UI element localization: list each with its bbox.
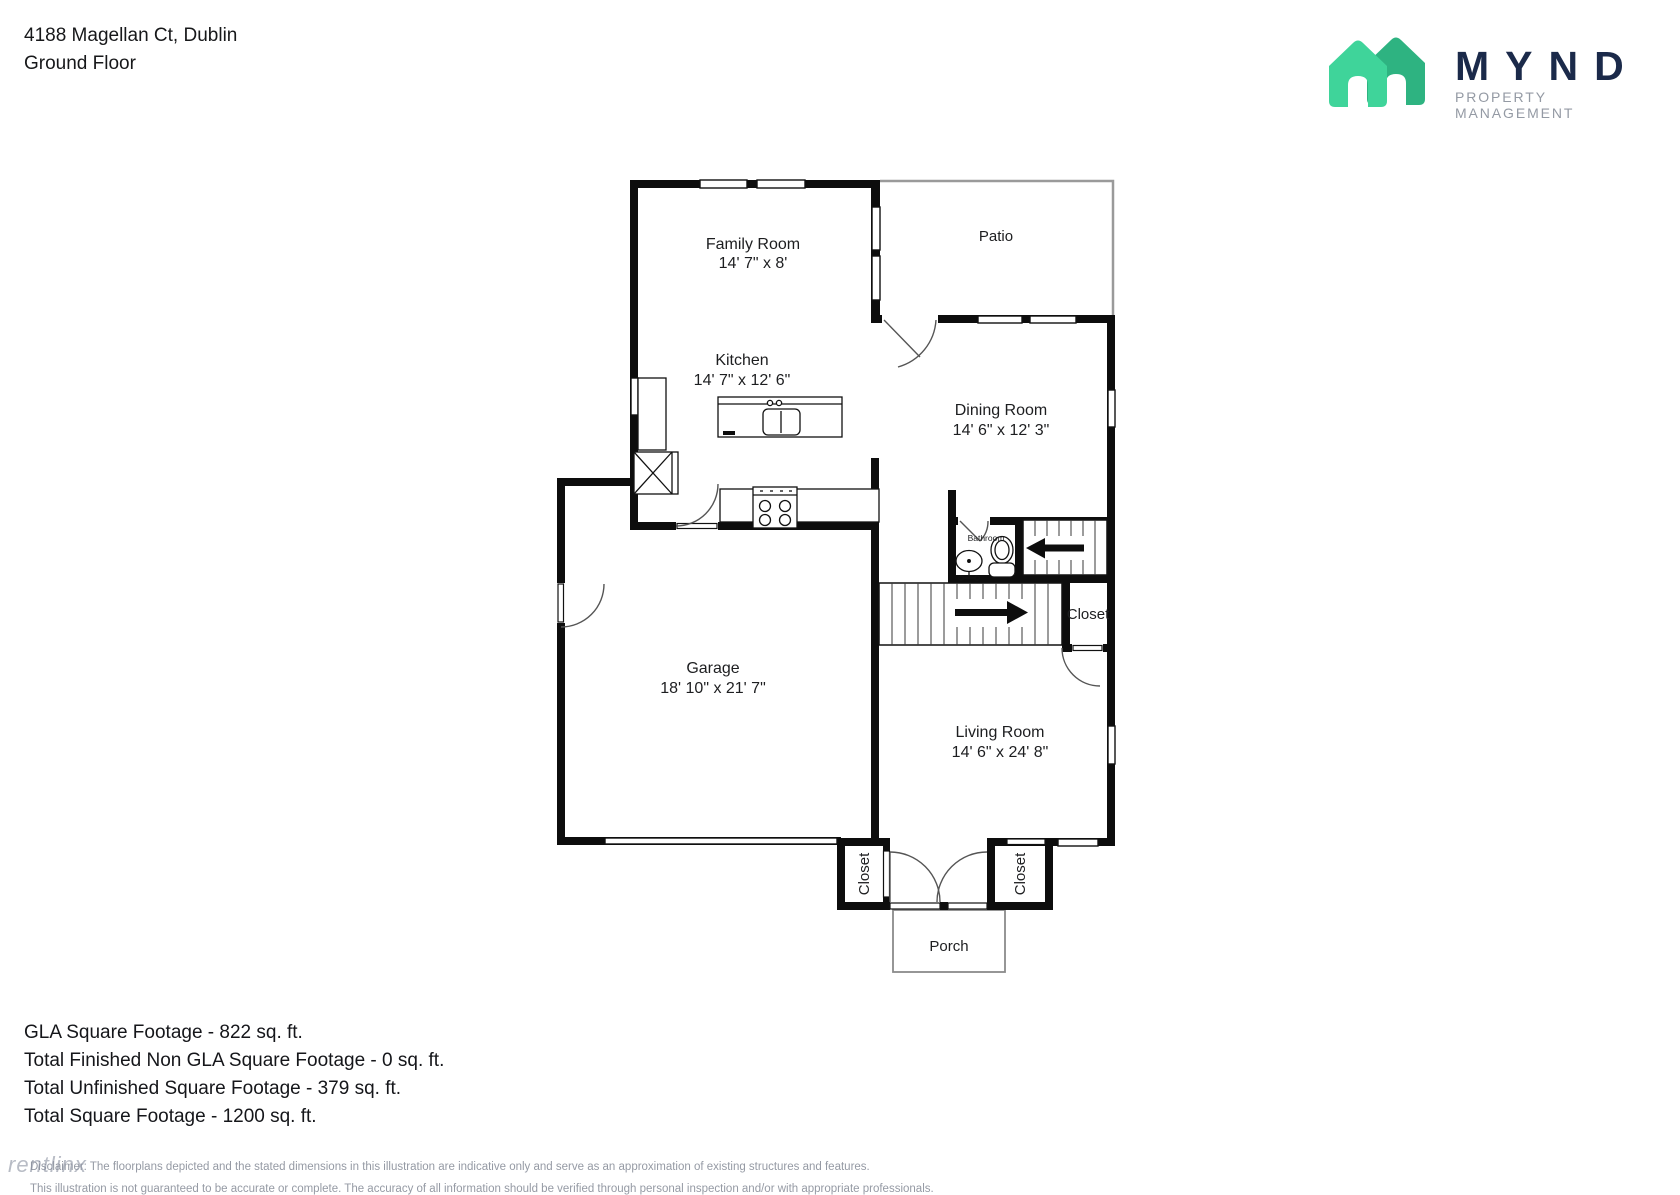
patio-outline [880,181,1113,316]
brand-name: MYND [1455,44,1670,88]
closet-label-right: Closet [1012,852,1029,895]
disclaimer-line2: This illustration is not guaranteed to b… [30,1183,934,1195]
header: 4188 Magellan Ct, Dublin Ground Floor [24,22,237,78]
closet-label-mid: Closet [1067,606,1110,623]
logo-text: MYND PROPERTY MANAGEMENT [1455,44,1670,121]
closet-label-left: Closet [856,852,873,895]
room-label-patio: Patio [979,228,1013,245]
room-label-kitchen: Kitchen [715,352,768,369]
unfinished-footage: Total Unfinished Square Footage - 379 sq… [24,1075,444,1103]
room-dims-living: 14' 6" x 24' 8" [952,744,1049,761]
mynd-logo-icon [1325,30,1431,108]
non-gla-footage: Total Finished Non GLA Square Footage - … [24,1047,444,1075]
bathroom-fixtures [956,537,1015,581]
room-dims-garage: 18' 10" x 21' 7" [660,680,766,697]
gla-footage: GLA Square Footage - 822 sq. ft. [24,1019,444,1047]
kitchen-fixtures [634,378,879,528]
room-label-family: Family Room [706,236,800,253]
room-label-dining: Dining Room [955,402,1047,419]
house-light-icon [1329,41,1387,108]
square-footage-summary: GLA Square Footage - 822 sq. ft. Total F… [24,1019,444,1131]
room-label-garage: Garage [686,660,739,677]
room-dims-kitchen: 14' 7" x 12' 6" [694,372,791,389]
room-dims-family: 14' 7" x 8' [719,255,788,272]
floor-label: Ground Floor [24,50,237,78]
disclaimer-line1: Disclaimer: The floorplans depicted and … [30,1161,870,1173]
floorplan: Family Room 14' 7" x 8' Patio Kitchen 14… [500,150,1160,990]
porch-label: Porch [929,938,968,955]
room-label-living: Living Room [956,724,1045,741]
brand-tagline: PROPERTY MANAGEMENT [1455,89,1670,121]
room-dims-dining: 14' 6" x 12' 3" [953,422,1050,439]
total-footage: Total Square Footage - 1200 sq. ft. [24,1103,444,1131]
room-label-bathroom: Bathroom [968,533,1005,543]
address-line: 4188 Magellan Ct, Dublin [24,22,237,50]
rentlinx-watermark: rentlinx [8,1152,87,1178]
